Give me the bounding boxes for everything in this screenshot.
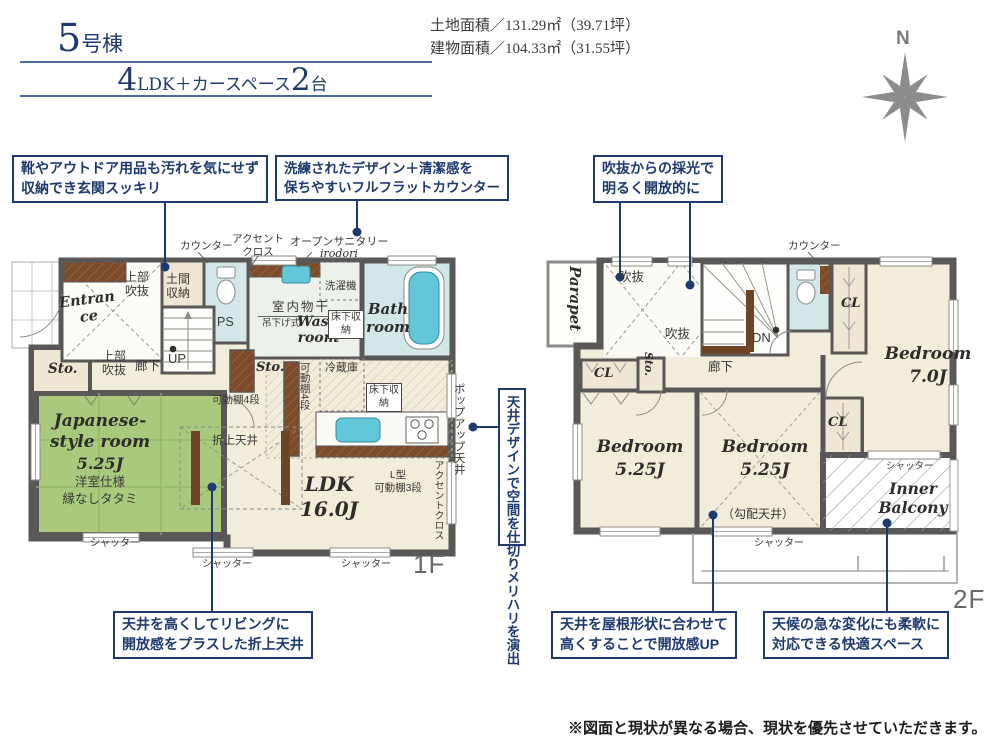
area-info: 土地面積／131.29㎡（39.71坪） 建物面積／104.33㎡（31.55坪… bbox=[430, 15, 640, 62]
room-bath: Bath room bbox=[356, 300, 420, 336]
unit-suffix: 号棟 bbox=[81, 32, 123, 56]
label-shutter-2f-b: シャッター bbox=[754, 538, 804, 550]
room-ldk: LDK 16.0J bbox=[274, 472, 384, 522]
room-bedroom-b: Bedroom 5.25J bbox=[580, 436, 700, 482]
room-inner-balcony: Inner Balcony bbox=[853, 480, 973, 517]
label-accent-cross-2: アクセントクロス bbox=[431, 460, 443, 548]
label-upper-void-1: 上部吹抜 bbox=[122, 270, 152, 299]
label-counter-2f: カウンター bbox=[788, 240, 841, 253]
room-storage-1: Sto. bbox=[48, 361, 77, 377]
label-shelf4-v: 可動棚4段 bbox=[298, 362, 311, 426]
label-washer: 洗濯機 bbox=[325, 280, 357, 293]
plan-cars-unit: 台 bbox=[311, 75, 328, 95]
room-bedroom-a: Bedroom 7.0J bbox=[868, 343, 988, 389]
label-closet-2: CL bbox=[828, 415, 848, 431]
land-area: 土地面積／131.29㎡（39.71坪） bbox=[430, 15, 640, 38]
label-open-sanitary-sub: irodori bbox=[320, 247, 358, 260]
label-upper-void-2: 上部吹抜 bbox=[99, 349, 129, 378]
label-shutter-1f-b: シャッター bbox=[202, 559, 252, 571]
label-dn: DN bbox=[752, 330, 771, 346]
plan-rooms-count: 4 bbox=[117, 62, 137, 98]
label-shutter-2f-a: シャッター bbox=[886, 461, 934, 472]
label-closet-3: CL bbox=[594, 366, 614, 382]
callout-inner-balcony: 天候の急な変化にも柔軟に 対応できる快適スペース bbox=[763, 611, 949, 659]
label-shutter-1f-c: シャッター bbox=[341, 559, 391, 571]
label-underfloor-storage-2: 床下収納 bbox=[366, 383, 402, 412]
label-void-1: 吹抜 bbox=[619, 270, 644, 285]
callout-sloped-ceiling: 天井を屋根形状に合わせて 高くすることで開放感UP bbox=[551, 611, 737, 659]
room-entrance: Entrance bbox=[58, 289, 118, 329]
label-hallway-2f: 廊下 bbox=[708, 360, 733, 375]
label-void-2: 吹抜 bbox=[665, 327, 690, 342]
callout-flat-counter: 洗練されたデザイン＋清潔感を 保ちやすいフルフラットカウンター bbox=[275, 155, 509, 201]
label-storage-2f: Sto. bbox=[642, 352, 655, 390]
label-popup-ceiling: ポップアップ天井 bbox=[451, 383, 465, 489]
callout-void-light: 吹抜からの採光で 明るく開放的に bbox=[593, 155, 723, 203]
room-japanese: Japanese- style room 5.25J 洋室仕様 縁なしタタミ bbox=[20, 411, 180, 507]
floorplan-flyer: 5号棟 4LDK＋カースペース2台 土地面積／131.29㎡（39.71坪） 建… bbox=[0, 0, 1000, 751]
compass-rose-icon bbox=[862, 52, 948, 142]
label-parapet: Parapet bbox=[566, 266, 584, 346]
building-area: 建物面積／104.33㎡（31.55坪） bbox=[430, 38, 640, 61]
compass-north-label: N bbox=[896, 28, 910, 51]
room-bedroom-c: Bedroom 5.25J bbox=[705, 436, 825, 482]
label-hallway-1f: 廊下 bbox=[135, 359, 160, 374]
callout-ceiling-zoning: 天井デザインで空間を仕切りメリハリを演出 bbox=[498, 388, 526, 546]
label-up: UP bbox=[168, 351, 186, 367]
label-fridge: 冷蔵庫 bbox=[325, 362, 358, 375]
callout-coffered-ceiling: 天井を高くしてリビングに 開放感をプラスした折上天井 bbox=[113, 611, 313, 659]
floor-label-2f: 2F bbox=[953, 584, 985, 615]
plan-cars-count: 2 bbox=[291, 62, 311, 98]
floor-label-1f: 1F bbox=[413, 549, 445, 580]
label-sloped-ceiling: （勾配天井） bbox=[722, 507, 794, 521]
unit-number: 5 bbox=[57, 16, 81, 60]
label-closet-1: CL bbox=[841, 296, 861, 312]
label-ps: PS bbox=[217, 315, 234, 330]
header-rule-bottom bbox=[20, 95, 432, 97]
unit-title: 5号棟 bbox=[57, 16, 123, 62]
room-doma-storage: 土間収納 bbox=[161, 272, 195, 301]
label-shutter-1f-a: シャッター bbox=[90, 538, 140, 550]
callout-entrance-storage: 靴やアウトドア用品も汚れを気にせず 収納でき玄関スッキリ bbox=[12, 155, 268, 203]
room-storage-2: Sto. bbox=[256, 360, 284, 376]
plan-summary: 4LDK＋カースペース2台 bbox=[105, 62, 340, 99]
label-shelf4-h: 可動棚4段 bbox=[212, 394, 260, 407]
plan-rooms-text: LDK＋カースペース bbox=[137, 75, 291, 95]
label-coffered-ceiling: 折上天井 bbox=[212, 435, 258, 449]
label-accent-cross-1: アクセントクロス bbox=[230, 233, 286, 258]
disclaimer: ※図面と現状が異なる場合、現状を優先させていただきます。 bbox=[568, 720, 987, 738]
label-counter-1f: カウンター bbox=[180, 240, 233, 253]
